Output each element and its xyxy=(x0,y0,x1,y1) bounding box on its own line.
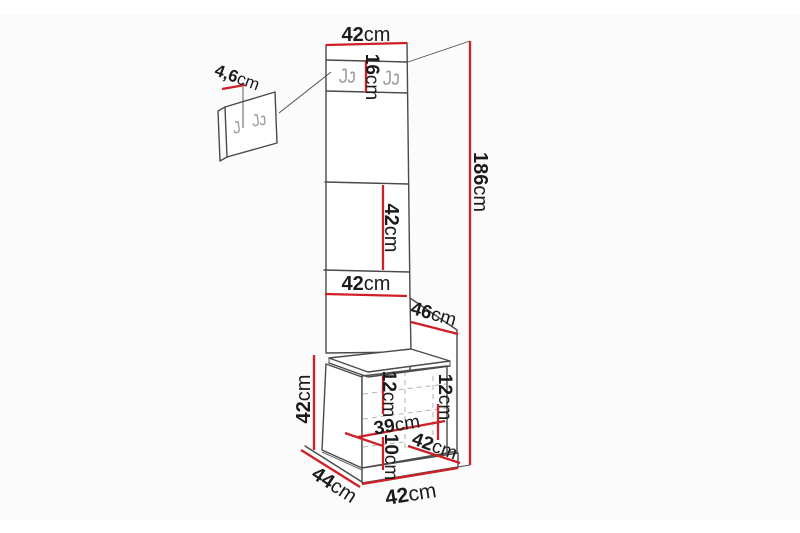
dim-unit: cm xyxy=(469,185,491,212)
dim-unit: cm xyxy=(293,375,315,402)
dim-unit: cm xyxy=(378,392,399,417)
dim-shelf-front-height: 12cm xyxy=(378,371,399,417)
cabinet-left-side xyxy=(322,364,362,468)
furniture-dimension-drawing: 42cm 16cm 4,6cm 186cm 42cm 42cm 46cm 42c… xyxy=(0,0,800,533)
dim-value: 42 xyxy=(342,273,364,295)
dim-bench-height: 42cm xyxy=(293,375,315,424)
dim-unit: cm xyxy=(364,24,391,46)
dim-value: 42 xyxy=(293,401,315,423)
dim-unit: cm xyxy=(380,226,402,253)
dim-lower-panel-width: 42cm xyxy=(342,273,391,295)
dim-shelf-side-height: 12cm xyxy=(434,374,455,420)
dim-total-height: 186cm xyxy=(469,152,491,212)
dim-value: 12 xyxy=(378,371,399,392)
dim-panel-top-width: 42cm xyxy=(342,24,391,46)
dim-value: 42 xyxy=(384,484,411,510)
dim-value: 42 xyxy=(380,204,402,226)
dim-unit: cm xyxy=(407,479,438,506)
dim-unit: cm xyxy=(380,455,401,480)
dim-unit: cm xyxy=(361,75,382,100)
dim-mid-panel-height: 42cm xyxy=(380,204,402,253)
dim-value: 10 xyxy=(380,434,401,455)
dim-plinth-height: 10cm xyxy=(380,434,401,480)
dim-value: 42 xyxy=(342,24,364,46)
dimension-diagram-canvas: 42cm 16cm 4,6cm 186cm 42cm 42cm 46cm 42c… xyxy=(0,0,800,533)
dim-value: 12 xyxy=(434,374,455,395)
dim-unit: cm xyxy=(434,395,455,420)
dim-value: 16 xyxy=(361,54,382,75)
dim-unit: cm xyxy=(364,273,391,295)
dim-hook-strip-height: 16cm xyxy=(361,54,382,100)
dim-value: 186 xyxy=(469,152,491,185)
